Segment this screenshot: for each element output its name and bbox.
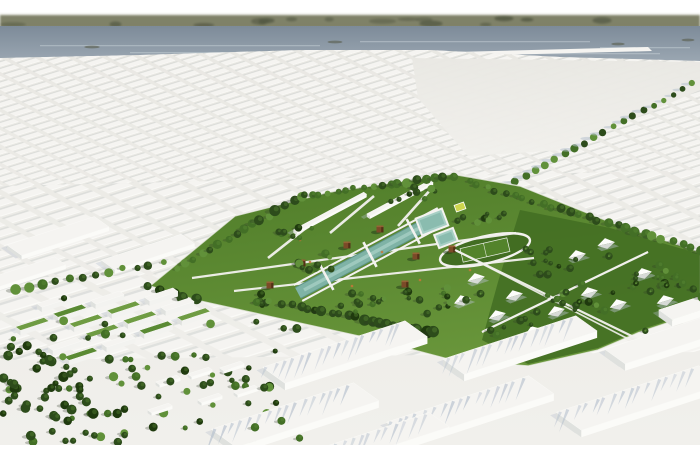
tree-highlight bbox=[506, 191, 509, 194]
tree-highlight bbox=[28, 284, 33, 289]
tree-highlight bbox=[85, 398, 89, 402]
tree-highlight bbox=[545, 251, 547, 253]
tree-highlight bbox=[304, 192, 307, 195]
tree-highlight bbox=[636, 272, 638, 274]
tree-highlight bbox=[355, 310, 357, 312]
tree-highlight bbox=[329, 255, 331, 257]
tree-highlight bbox=[384, 297, 386, 299]
tree-highlight bbox=[205, 355, 208, 358]
tree-highlight bbox=[117, 439, 121, 443]
tree-highlight bbox=[531, 200, 534, 203]
tree-highlight bbox=[659, 262, 663, 266]
tree-highlight bbox=[443, 291, 445, 293]
tree-highlight bbox=[562, 301, 565, 304]
tree-highlight bbox=[604, 308, 608, 312]
tree-highlight bbox=[3, 411, 6, 414]
tree-highlight bbox=[7, 352, 11, 356]
tree-highlight bbox=[308, 267, 312, 271]
tree-highlight bbox=[105, 331, 109, 335]
tree-highlight bbox=[79, 387, 82, 390]
tree-highlight bbox=[488, 185, 490, 187]
tree-highlight bbox=[95, 272, 98, 275]
tree-highlight bbox=[340, 303, 343, 306]
tree-highlight bbox=[284, 202, 288, 206]
tree-highlight bbox=[89, 376, 92, 379]
tree-highlight bbox=[210, 380, 213, 383]
tree-highlight bbox=[87, 336, 90, 339]
tree-highlight bbox=[260, 291, 264, 295]
tree-highlight bbox=[69, 386, 72, 389]
tree-highlight bbox=[533, 260, 536, 263]
tree-highlight bbox=[503, 326, 505, 328]
tree-highlight bbox=[356, 299, 359, 302]
tree-highlight bbox=[441, 174, 445, 178]
tree-highlight bbox=[661, 276, 664, 279]
tree-highlight bbox=[147, 263, 151, 267]
tree-highlight bbox=[317, 262, 320, 265]
tree-highlight bbox=[124, 406, 127, 409]
tree-highlight bbox=[351, 290, 355, 294]
tree-highlight bbox=[363, 316, 368, 321]
tree-highlight bbox=[137, 266, 140, 269]
tree-highlight bbox=[79, 383, 83, 387]
tree-highlight bbox=[122, 333, 125, 336]
tree-highlight bbox=[19, 349, 22, 352]
render-content bbox=[0, 12, 700, 450]
tree-highlight bbox=[692, 286, 695, 289]
palm-crown bbox=[666, 284, 668, 286]
tree-highlight bbox=[42, 281, 47, 286]
tree-highlight bbox=[556, 297, 559, 300]
tree-highlight bbox=[13, 381, 17, 385]
tree-highlight bbox=[612, 291, 614, 293]
flower-patch bbox=[381, 251, 384, 254]
tree-highlight bbox=[243, 225, 247, 229]
tree-highlight bbox=[228, 237, 231, 240]
avenue-tree bbox=[661, 98, 666, 103]
tree-highlight bbox=[407, 289, 411, 293]
tree-highlight bbox=[10, 344, 14, 348]
tree-highlight bbox=[44, 394, 48, 398]
palm-crown bbox=[530, 251, 532, 253]
sandbar bbox=[611, 43, 624, 46]
tree-highlight bbox=[558, 265, 560, 267]
tree-highlight bbox=[515, 193, 518, 196]
tree-highlight bbox=[470, 179, 473, 182]
tree-highlight bbox=[210, 321, 214, 325]
tree-highlight bbox=[100, 433, 104, 437]
tree-highlight bbox=[39, 406, 42, 409]
tree-highlight bbox=[398, 197, 400, 199]
tree-highlight bbox=[589, 214, 593, 218]
tree-highlight bbox=[364, 185, 367, 188]
tree-highlight bbox=[432, 327, 437, 332]
tree-highlight bbox=[618, 222, 621, 225]
tree-highlight bbox=[53, 335, 56, 338]
tree-highlight bbox=[317, 192, 320, 195]
tree-highlight bbox=[248, 401, 251, 404]
avenue-tree bbox=[651, 103, 657, 109]
tree-highlight bbox=[216, 241, 220, 245]
tree-highlight bbox=[15, 285, 20, 290]
palm-crown bbox=[578, 301, 580, 303]
tree-highlight bbox=[352, 186, 355, 189]
tree-highlight bbox=[196, 295, 201, 300]
tree-highlight bbox=[475, 182, 478, 185]
tree-highlight bbox=[450, 299, 454, 303]
tree-highlight bbox=[673, 238, 676, 241]
avenue-tree bbox=[581, 140, 588, 147]
tree-highlight bbox=[181, 293, 186, 298]
tree-highlight bbox=[487, 212, 489, 214]
tree-highlight bbox=[58, 386, 61, 389]
tree-highlight bbox=[42, 359, 45, 362]
tree-highlight bbox=[550, 262, 552, 264]
tree-highlight bbox=[66, 365, 69, 368]
tree-highlight bbox=[125, 357, 128, 360]
tree-highlight bbox=[199, 419, 202, 422]
tree-highlight bbox=[26, 401, 30, 405]
tree-highlight bbox=[299, 236, 301, 238]
tree-highlight bbox=[569, 265, 572, 268]
avenue-tree bbox=[689, 80, 695, 86]
tree-highlight bbox=[378, 300, 380, 302]
tree-highlight bbox=[209, 248, 212, 251]
tree-highlight bbox=[325, 251, 329, 255]
tree-highlight bbox=[635, 277, 637, 279]
tree-highlight bbox=[595, 218, 599, 222]
palm-crown bbox=[608, 255, 610, 257]
tree-highlight bbox=[85, 430, 88, 433]
tree-highlight bbox=[547, 271, 551, 275]
tree-highlight bbox=[299, 260, 303, 264]
tree-highlight bbox=[503, 211, 506, 214]
shore-clump bbox=[521, 18, 534, 22]
tree-highlight bbox=[499, 216, 501, 218]
tree-highlight bbox=[13, 337, 15, 339]
tree-highlight bbox=[465, 297, 468, 300]
tree-highlight bbox=[560, 205, 564, 209]
tree-highlight bbox=[299, 435, 302, 438]
tree-highlight bbox=[158, 394, 161, 397]
tree-highlight bbox=[52, 429, 55, 432]
tree-highlight bbox=[447, 285, 450, 288]
tree-highlight bbox=[71, 406, 75, 410]
flower-patch bbox=[309, 261, 312, 264]
tree-highlight bbox=[55, 414, 59, 418]
shore-clump bbox=[592, 17, 611, 24]
tree-highlight bbox=[651, 232, 655, 236]
tree-highlight bbox=[54, 279, 57, 282]
tree-highlight bbox=[163, 260, 166, 263]
tree-highlight bbox=[161, 353, 165, 357]
flower-patch bbox=[351, 285, 354, 288]
tree-highlight bbox=[72, 416, 74, 418]
tree-highlight bbox=[186, 389, 189, 392]
tree-highlight bbox=[268, 298, 271, 301]
tree-highlight bbox=[547, 293, 549, 295]
tree-highlight bbox=[254, 424, 258, 428]
tree-highlight bbox=[82, 275, 86, 279]
shore-clump bbox=[258, 21, 266, 25]
render-canvas bbox=[0, 0, 700, 450]
tree-highlight bbox=[184, 368, 188, 372]
tree-highlight bbox=[490, 327, 493, 330]
flower-patch bbox=[419, 279, 422, 282]
tree-highlight bbox=[263, 385, 267, 389]
sandbar bbox=[682, 39, 695, 42]
tree-highlight bbox=[550, 205, 553, 208]
tree-highlight bbox=[320, 307, 325, 312]
cube-top bbox=[267, 282, 274, 284]
tree-highlight bbox=[147, 283, 151, 287]
tree-highlight bbox=[426, 311, 429, 314]
tree-highlight bbox=[231, 378, 233, 380]
tree-highlight bbox=[212, 403, 214, 405]
tree-highlight bbox=[170, 379, 174, 383]
tree-highlight bbox=[531, 323, 533, 325]
tree-highlight bbox=[258, 217, 262, 221]
tree-highlight bbox=[633, 228, 638, 233]
tree-highlight bbox=[122, 266, 125, 269]
palm-crown bbox=[565, 291, 567, 293]
tree-highlight bbox=[596, 303, 598, 305]
sandbar bbox=[328, 41, 343, 44]
tree-highlight bbox=[36, 365, 40, 369]
tree-highlight bbox=[660, 236, 664, 240]
tree-highlight bbox=[543, 201, 547, 205]
avenue-tree bbox=[551, 156, 558, 163]
tree-highlight bbox=[682, 280, 685, 283]
tree-highlight bbox=[212, 373, 214, 375]
tree-highlight bbox=[307, 306, 311, 310]
tree-highlight bbox=[588, 299, 592, 303]
tree-highlight bbox=[94, 433, 97, 436]
cube-top bbox=[377, 226, 384, 228]
tree-highlight bbox=[130, 357, 133, 360]
shore-clump bbox=[494, 16, 513, 21]
tree-highlight bbox=[192, 257, 195, 260]
tree-highlight bbox=[690, 245, 694, 249]
tree-highlight bbox=[235, 383, 239, 387]
tree-highlight bbox=[283, 326, 286, 329]
tree-highlight bbox=[545, 259, 547, 261]
tree-highlight bbox=[575, 258, 577, 260]
tree-highlight bbox=[248, 366, 250, 368]
tree-highlight bbox=[345, 188, 348, 191]
tree-highlight bbox=[281, 301, 285, 305]
tree-highlight bbox=[135, 373, 139, 377]
tree-highlight bbox=[453, 174, 457, 178]
tree-highlight bbox=[74, 368, 77, 371]
tree-highlight bbox=[65, 438, 68, 441]
avenue-tree bbox=[611, 123, 617, 129]
tree-highlight bbox=[108, 269, 112, 273]
tree-highlight bbox=[141, 383, 145, 387]
tree-highlight bbox=[409, 192, 412, 195]
palm-crown bbox=[480, 293, 482, 295]
avenue-tree bbox=[680, 86, 686, 92]
tree-highlight bbox=[131, 366, 134, 369]
tree-highlight bbox=[405, 290, 407, 292]
tree-highlight bbox=[296, 325, 300, 329]
tree-highlight bbox=[121, 381, 124, 384]
tree-highlight bbox=[147, 366, 150, 369]
tree-highlight bbox=[92, 409, 97, 414]
sandbar bbox=[84, 46, 99, 49]
tree-highlight bbox=[372, 296, 375, 299]
cube-top bbox=[413, 253, 420, 255]
cube-top bbox=[344, 242, 351, 244]
tree-highlight bbox=[521, 196, 524, 199]
tree-highlight bbox=[38, 349, 41, 352]
tree-highlight bbox=[275, 349, 277, 351]
tree-highlight bbox=[3, 375, 7, 379]
tree-highlight bbox=[581, 281, 585, 285]
tree-highlight bbox=[608, 219, 612, 223]
tree-highlight bbox=[8, 398, 12, 402]
shore-clump bbox=[480, 23, 492, 27]
avenue-tree bbox=[599, 129, 606, 136]
tree-highlight bbox=[360, 292, 363, 295]
tree-highlight bbox=[390, 199, 392, 201]
tree-highlight bbox=[177, 267, 180, 270]
tree-highlight bbox=[152, 424, 156, 428]
water-streak bbox=[360, 41, 590, 42]
flower-patch bbox=[469, 269, 472, 272]
tree-highlight bbox=[79, 393, 83, 397]
tree-highlight bbox=[113, 373, 117, 377]
tree-highlight bbox=[275, 401, 278, 404]
tree-highlight bbox=[496, 332, 500, 336]
tree-highlight bbox=[408, 297, 410, 299]
tree-highlight bbox=[245, 384, 248, 387]
tree-highlight bbox=[14, 393, 17, 396]
tree-highlight bbox=[124, 433, 127, 436]
shore-clump bbox=[369, 18, 396, 24]
tree-highlight bbox=[578, 212, 581, 215]
palm-crown bbox=[644, 330, 646, 332]
tree-highlight bbox=[281, 418, 285, 422]
tree-highlight bbox=[302, 266, 304, 268]
tree-highlight bbox=[62, 354, 65, 357]
tree-highlight bbox=[292, 234, 294, 236]
tree-highlight bbox=[256, 299, 259, 302]
tree-highlight bbox=[549, 247, 552, 250]
shore-clump bbox=[397, 18, 418, 21]
tree-highlight bbox=[413, 184, 416, 187]
tree-highlight bbox=[477, 220, 480, 223]
tree-highlight bbox=[311, 227, 313, 229]
tree-highlight bbox=[63, 317, 67, 321]
tree-highlight bbox=[493, 189, 496, 192]
tree-highlight bbox=[63, 296, 66, 299]
tree-highlight bbox=[298, 225, 301, 228]
shore-clump bbox=[419, 21, 442, 27]
avenue-tree bbox=[541, 161, 549, 169]
avenue-tree bbox=[629, 112, 636, 119]
tree-highlight bbox=[520, 317, 524, 321]
tree-highlight bbox=[283, 230, 286, 233]
tree-highlight bbox=[174, 353, 178, 357]
tree-highlight bbox=[268, 384, 272, 388]
tree-highlight bbox=[417, 190, 419, 192]
avenue-tree bbox=[671, 92, 676, 97]
cube-top bbox=[449, 246, 456, 248]
tree-highlight bbox=[327, 191, 330, 194]
tree-highlight bbox=[338, 311, 341, 314]
tree-highlight bbox=[447, 294, 450, 297]
palm-crown bbox=[635, 282, 637, 284]
water-streak bbox=[40, 45, 320, 46]
palm-crown bbox=[649, 290, 651, 292]
tree-highlight bbox=[55, 381, 58, 384]
tree-highlight bbox=[675, 275, 678, 278]
shore-clump bbox=[286, 17, 297, 21]
tree-highlight bbox=[256, 320, 259, 323]
tree-highlight bbox=[104, 322, 107, 325]
tree-highlight bbox=[665, 269, 668, 272]
tree-highlight bbox=[43, 353, 46, 356]
tree-highlight bbox=[330, 266, 333, 269]
tree-highlight bbox=[108, 356, 112, 360]
tree-highlight bbox=[67, 418, 71, 422]
palm-crown bbox=[525, 248, 527, 250]
tree-highlight bbox=[570, 208, 574, 212]
cube-top bbox=[402, 281, 409, 283]
tree-highlight bbox=[624, 224, 629, 229]
tree-highlight bbox=[462, 215, 465, 218]
tree-highlight bbox=[159, 287, 163, 291]
tree-highlight bbox=[185, 426, 187, 428]
tree-highlight bbox=[419, 297, 422, 300]
palm-crown bbox=[536, 311, 538, 313]
tree-highlight bbox=[488, 218, 491, 221]
tree-highlight bbox=[64, 402, 68, 406]
tree-highlight bbox=[69, 371, 72, 374]
shore-clump bbox=[325, 17, 334, 21]
tree-highlight bbox=[48, 356, 53, 361]
tree-highlight bbox=[30, 432, 34, 436]
tree-highlight bbox=[26, 342, 30, 346]
masterplan-render bbox=[0, 0, 700, 450]
tree-highlight bbox=[193, 353, 195, 355]
tree-highlight bbox=[431, 186, 435, 190]
tree-highlight bbox=[245, 376, 249, 380]
tree-highlight bbox=[424, 197, 427, 200]
tree-highlight bbox=[72, 438, 75, 441]
tree-highlight bbox=[292, 302, 295, 305]
tree-highlight bbox=[69, 275, 73, 279]
tree-highlight bbox=[524, 317, 527, 320]
tree-highlight bbox=[683, 241, 687, 245]
tree-highlight bbox=[438, 305, 441, 308]
